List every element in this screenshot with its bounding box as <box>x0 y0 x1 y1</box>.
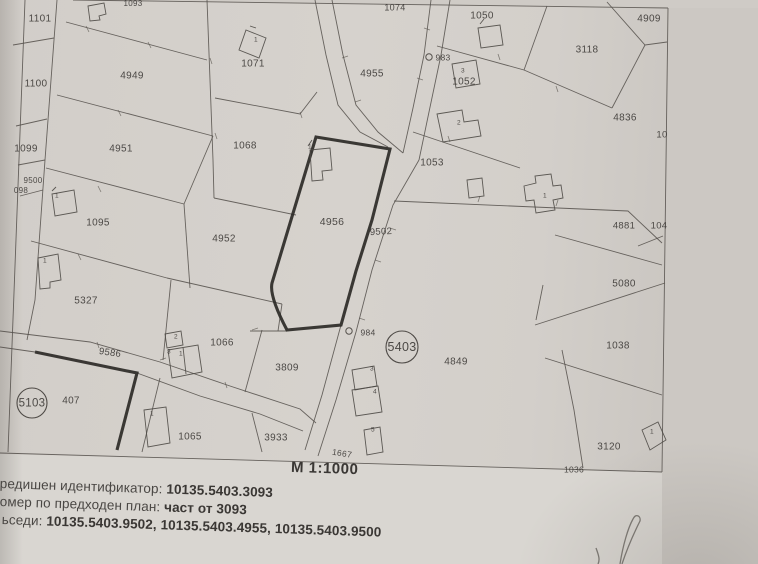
parcel-label: 098 <box>14 186 28 195</box>
parcel-label: 4849 <box>444 357 468 368</box>
parcel-label: 4909 <box>637 14 661 25</box>
parcel-label: 10 <box>656 130 667 141</box>
building-label: 1 <box>254 37 258 44</box>
parcel-label: 5080 <box>612 279 636 290</box>
survey-point-marker <box>426 54 432 60</box>
parcel-label: 1093 <box>124 0 143 8</box>
parcel-label: 1095 <box>86 218 110 229</box>
parcel-label: 1053 <box>420 158 444 169</box>
parcel-label: 1100 <box>25 79 48 90</box>
road-label: 1667 <box>331 447 352 460</box>
parcel-label: 1050 <box>470 11 494 22</box>
parcel-label: 3120 <box>597 442 621 453</box>
parcel-label: 1101 <box>29 14 52 25</box>
parcel-label: 1099 <box>14 144 38 155</box>
parcel-label: 3118 <box>576 45 599 56</box>
parcel-label: 104 <box>651 221 668 232</box>
survey-point-marker <box>346 328 352 334</box>
building-label: 1 <box>650 429 654 436</box>
footer-value: част от 3093 <box>164 499 247 517</box>
parcel-label: 4836 <box>613 113 637 124</box>
building-label: 1 <box>179 351 183 358</box>
parcel-label: 1036 <box>564 464 584 474</box>
parcel-label: 1038 <box>606 341 630 352</box>
building-label: 4 <box>373 389 377 396</box>
parcel-label: 4949 <box>120 71 144 82</box>
footer-label: ьседи: <box>2 512 47 528</box>
parcel-label: 1066 <box>210 338 234 349</box>
parcel-label: 4956 <box>320 216 345 228</box>
building-label: 1 <box>150 411 154 418</box>
parcel-label: 4881 <box>613 221 635 232</box>
cadastral-map-photo: 1101110010999500098494949511095532710931… <box>0 0 758 564</box>
building-label: 3 <box>167 349 171 356</box>
road-label: 9502 <box>370 226 393 238</box>
quarter-number-label: 5103 <box>19 398 46 410</box>
page-margin-right <box>662 8 758 564</box>
building-label: 3 <box>370 366 374 373</box>
parcel-label: 3933 <box>264 433 288 444</box>
building-label: 5 <box>371 427 375 434</box>
building-label: 2 <box>457 120 461 127</box>
map-frame <box>0 0 668 472</box>
parcel-label: 5327 <box>74 296 98 307</box>
survey-point-label: 984 <box>360 327 375 337</box>
parcel-label: 407 <box>62 396 80 407</box>
survey-point-label: 983 <box>435 52 450 62</box>
parcel-label: 3809 <box>275 363 299 374</box>
building-label: 1 <box>55 193 59 200</box>
parcel-label: 1074 <box>384 2 405 12</box>
road-label: 9586 <box>98 346 122 360</box>
parcel-label: 9500 <box>24 176 43 185</box>
parcel-label: 4952 <box>212 234 236 245</box>
quarter-number-label: 5403 <box>387 340 416 354</box>
parcel-label: 4951 <box>109 144 133 155</box>
building-label: 1 <box>308 144 312 151</box>
building-label: 3 <box>461 68 465 75</box>
parcel-label: 1071 <box>241 59 265 70</box>
parcel-label: 1068 <box>233 141 257 152</box>
parcel-label: 4955 <box>360 69 384 80</box>
building-label: 1 <box>43 258 47 265</box>
parcel-lines <box>0 0 667 468</box>
building-label: 2 <box>174 334 178 341</box>
map-scale-label: М 1:1000 <box>291 459 359 478</box>
building-label: 1 <box>543 193 547 200</box>
parcel-407-bold-border <box>35 352 137 450</box>
parcel-label: 1065 <box>178 432 202 443</box>
parcel-label: 1052 <box>452 77 476 88</box>
